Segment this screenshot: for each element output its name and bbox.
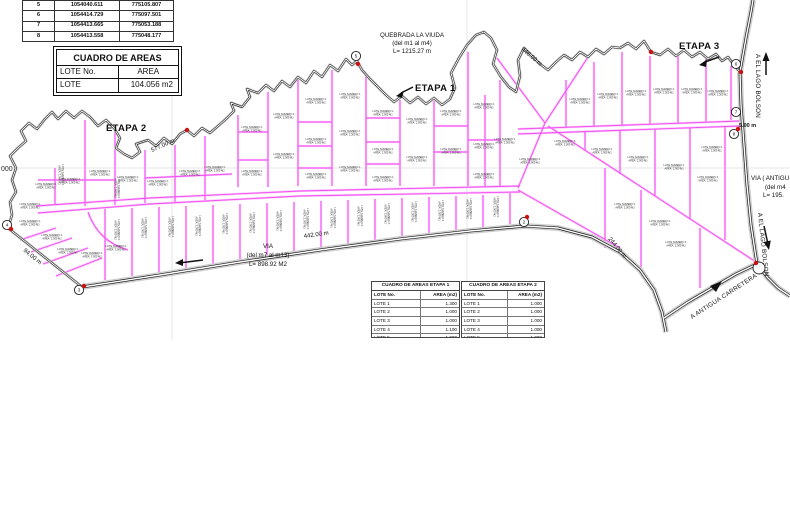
lot-label: LOTE NUMERO 1AREA: 1,000 M2 xyxy=(406,117,428,125)
etapa1-table-header: LOTE No. AREA (m2) xyxy=(372,291,459,300)
svg-text:LOTE NUMERO 1: LOTE NUMERO 1 xyxy=(614,202,636,206)
svg-text:AREA: 1,000 M2: AREA: 1,000 M2 xyxy=(306,141,326,145)
svg-text:LOTE NUMERO 1: LOTE NUMERO 1 xyxy=(663,163,685,167)
svg-text:LOTE NUMERO 1: LOTE NUMERO 1 xyxy=(414,201,418,223)
lot-label: LOTE NUMERO 1AREA: 1,000 M2 xyxy=(383,203,391,225)
svg-text:AREA: 1,000 M2: AREA: 1,000 M2 xyxy=(474,176,494,180)
etapa-table-row: LOTE 41.100 xyxy=(372,326,459,335)
lot-label: LOTE NUMERO 1AREA: 1,000 M2 xyxy=(35,182,57,190)
svg-text:LOTE NUMERO 1: LOTE NUMERO 1 xyxy=(61,164,65,186)
lot-label: LOTE NUMERO 1AREA: 1,000 M2 xyxy=(554,139,576,147)
lot-label: LOTE NUMERO 1AREA: 1,000 M2 xyxy=(591,147,613,155)
control-point-dot xyxy=(9,227,13,231)
lot-label: LOTE NUMERO 1AREA: 1,000 M2 xyxy=(465,198,473,220)
lot-label: LOTE NUMERO 1AREA: 1,000 M2 xyxy=(19,219,41,227)
lot-label: LOTE NUMERO 1AREA: 1,000 M2 xyxy=(339,129,361,137)
svg-text:LOTE NUMERO 1: LOTE NUMERO 1 xyxy=(372,175,394,179)
lot-label: LOTE NUMERO 1AREA: 1,000 M2 xyxy=(305,137,327,145)
svg-text:LOTE NUMERO 1: LOTE NUMERO 1 xyxy=(198,215,202,237)
lot-label: LOTE NUMERO 1AREA: 1,000 M2 xyxy=(302,208,310,230)
lot-label: LOTE NUMERO 1AREA: 1,000 M2 xyxy=(113,177,121,199)
lot-label: LOTE NUMERO 1AREA: 1,000 M2 xyxy=(372,109,394,117)
lot-label: LOTE NUMERO 1AREA: 1,000 M2 xyxy=(105,244,127,252)
marker-number: 5 xyxy=(355,54,358,59)
svg-text:AREA: 1,000 M2: AREA: 1,000 M2 xyxy=(555,143,575,147)
lot-label: LOTE NUMERO 1AREA: 1,000 M2 xyxy=(81,251,103,259)
svg-text:LOTE NUMERO 1: LOTE NUMERO 1 xyxy=(306,208,310,230)
survey-marker-7: 7 xyxy=(731,107,740,116)
marker-number: 8 xyxy=(733,132,736,137)
lot-label: LOTE NUMERO 1AREA: 1,000 M2 xyxy=(473,142,495,150)
svg-text:AREA: 1,000 M2: AREA: 1,000 M2 xyxy=(275,211,279,231)
lot-line xyxy=(497,58,545,123)
lot-label: LOTE NUMERO 1AREA: 1,000 M2 xyxy=(519,157,541,165)
lot-label: LOTE NUMERO 1AREA: 1,000 M2 xyxy=(221,213,229,235)
lot-label: LOTE NUMERO 1AREA: 1,000 M2 xyxy=(681,87,703,95)
lote-name-cell: LOTE 1 xyxy=(462,300,507,308)
svg-text:AREA: 1,000 M2: AREA: 1,000 M2 xyxy=(615,206,635,210)
svg-text:LOTE NUMERO 1: LOTE NUMERO 1 xyxy=(665,240,687,244)
svg-text:LOTE NUMERO 1: LOTE NUMERO 1 xyxy=(339,165,361,169)
plat-drawing-canvas: LOTE NUMERO 1AREA: 1,000 M2LOTE NUMERO 1… xyxy=(0,0,790,527)
lot-label: LOTE NUMERO 1AREA: 1,000 M2 xyxy=(437,200,445,222)
lote-name-cell: LOTE 2 xyxy=(462,308,507,316)
svg-text:AREA: 1,000 M2: AREA: 1,000 M2 xyxy=(106,248,126,252)
control-point-dot xyxy=(356,62,360,66)
svg-text:AREA: 1,000 M2: AREA: 1,000 M2 xyxy=(465,199,469,219)
svg-text:LOTE NUMERO 1: LOTE NUMERO 1 xyxy=(469,198,473,220)
svg-text:AREA: 1,000 M2: AREA: 1,000 M2 xyxy=(474,146,494,150)
etapa2-col1: LOTE No. xyxy=(462,291,507,299)
svg-text:AREA: 1,000 M2: AREA: 1,000 M2 xyxy=(441,151,461,155)
svg-text:AREA: 1,000 M2: AREA: 1,000 M2 xyxy=(340,96,360,100)
svg-text:AREA: 1,000 M2: AREA: 1,000 M2 xyxy=(140,218,144,238)
coord-cell: 775105.807 xyxy=(120,1,174,11)
svg-text:LOTE NUMERO 1: LOTE NUMERO 1 xyxy=(305,172,327,176)
survey-marker-6: 6 xyxy=(731,59,740,68)
svg-text:LOTE NUMERO 1: LOTE NUMERO 1 xyxy=(494,137,516,141)
marker-number: 4 xyxy=(6,223,9,228)
control-point-dot xyxy=(649,50,653,54)
coord-table-row: 81054413.558775048.177 xyxy=(23,31,174,41)
svg-text:LOTE NUMERO 1: LOTE NUMERO 1 xyxy=(649,219,671,223)
lot-line xyxy=(38,192,520,213)
svg-text:LOTE NUMERO 1: LOTE NUMERO 1 xyxy=(89,169,111,173)
lot-label: LOTE NUMERO 1AREA: 1,000 M2 xyxy=(147,179,169,187)
quebrada-name: QUEBRADA LA VIUDA xyxy=(380,32,445,39)
lot-label: LOTE NUMERO 1AREA: 1,000 M2 xyxy=(372,147,394,155)
svg-text:LOTE NUMERO 1: LOTE NUMERO 1 xyxy=(225,213,229,235)
svg-text:LOTE NUMERO 1: LOTE NUMERO 1 xyxy=(441,200,445,222)
control-point-dot xyxy=(525,215,529,219)
lot-label: LOTE NUMERO 1AREA: 1,000 M2 xyxy=(275,210,283,232)
svg-text:LOTE NUMERO 1: LOTE NUMERO 1 xyxy=(372,109,394,113)
lot-line xyxy=(38,192,520,213)
lot-label: LOTE NUMERO 1AREA: 1,000 M2 xyxy=(273,152,295,160)
lote-name-cell: LOTE 4 xyxy=(462,326,507,334)
area-table-title: CUADRO DE AREAS xyxy=(57,50,178,66)
lot-label: LOTE NUMERO 1AREA: 1,000 M2 xyxy=(204,165,226,173)
svg-text:LOTE NUMERO 1: LOTE NUMERO 1 xyxy=(519,157,541,161)
lot-label: LOTE NUMERO 1AREA: 1,000 M2 xyxy=(339,165,361,173)
svg-text:AREA: 1,000 M2: AREA: 1,000 M2 xyxy=(90,173,110,177)
svg-text:AREA: 1,000 M2: AREA: 1,000 M2 xyxy=(682,91,702,95)
lot-label: LOTE NUMERO 1AREA: 1,000 M2 xyxy=(697,175,719,183)
lot-line xyxy=(36,186,520,206)
lot-label: LOTE NUMERO 1AREA: 1,000 M2 xyxy=(707,89,729,97)
via-name: VIA xyxy=(263,243,274,250)
coord-cell: 7 xyxy=(23,21,55,31)
svg-text:LOTE NUMERO 1: LOTE NUMERO 1 xyxy=(279,210,283,232)
svg-text:LOTE NUMERO 1: LOTE NUMERO 1 xyxy=(305,137,327,141)
lot-label: LOTE NUMERO 1AREA: 1,000 M2 xyxy=(653,87,675,95)
svg-text:LOTE NUMERO 1: LOTE NUMERO 1 xyxy=(707,89,729,93)
dim-448: 448.00 m xyxy=(520,47,543,68)
svg-text:LOTE NUMERO 1: LOTE NUMERO 1 xyxy=(473,172,495,176)
cuadro-areas-etapa-2-table: CUADRO DE AREAS ETAPA 2 LOTE No. AREA (m… xyxy=(461,281,545,338)
etapa2-table-header: LOTE No. AREA (m2) xyxy=(462,291,544,300)
lote-area-cell: 1.000 xyxy=(507,334,544,338)
svg-text:AREA: 1,000 M2: AREA: 1,000 M2 xyxy=(407,121,427,125)
svg-text:AREA: 1,000 M2: AREA: 1,000 M2 xyxy=(82,255,102,259)
coordinate-table: 51054040.611775105.80761054414.729775097… xyxy=(22,0,174,42)
lot-label: LOTE NUMERO 1AREA: 1,000 M2 xyxy=(339,92,361,100)
svg-text:AREA: 1,000 M2: AREA: 1,000 M2 xyxy=(373,151,393,155)
via-antigua-range: (del m4 xyxy=(765,184,786,191)
cuadro-areas-etapa-1-table: CUADRO DE AREAS ETAPA 1 LOTE No. AREA (m… xyxy=(371,281,460,338)
etapa-table-row: LOTE 21.000 xyxy=(462,308,544,317)
lot-label: LOTE NUMERO 1AREA: 1,000 M2 xyxy=(167,216,175,238)
svg-text:AREA: 1,000 M2: AREA: 1,000 M2 xyxy=(221,214,225,234)
lot-label: LOTE NUMERO 1AREA: 1,000 M2 xyxy=(625,89,647,97)
svg-text:AREA: 1,000 M2: AREA: 1,000 M2 xyxy=(36,186,56,190)
svg-text:AREA: 1,000 M2: AREA: 1,000 M2 xyxy=(598,96,618,100)
via-antigua-length: L= 195. xyxy=(763,192,784,199)
svg-text:AREA: 1,000 M2: AREA: 1,000 M2 xyxy=(58,251,78,255)
svg-text:LOTE NUMERO 1: LOTE NUMERO 1 xyxy=(179,169,201,173)
svg-text:AREA: 1,000 M2: AREA: 1,000 M2 xyxy=(708,93,728,97)
lot-label: LOTE NUMERO 1AREA: 1,000 M2 xyxy=(41,233,63,241)
svg-text:AREA: 1,000 M2: AREA: 1,000 M2 xyxy=(118,179,138,183)
coord-table-row: 71054413.665775053.188 xyxy=(23,21,174,31)
lot-label: LOTE NUMERO 1AREA: 1,000 M2 xyxy=(273,112,295,120)
lote-area-cell: 1.000 xyxy=(420,308,459,316)
svg-text:AREA: 1,000 M2: AREA: 1,000 M2 xyxy=(329,208,333,228)
svg-text:LOTE NUMERO 1: LOTE NUMERO 1 xyxy=(117,219,121,241)
control-point-dot xyxy=(185,128,189,132)
svg-text:AREA: 1,000 M2: AREA: 1,000 M2 xyxy=(306,176,326,180)
svg-text:AREA: 1,000 M2: AREA: 1,000 M2 xyxy=(113,178,117,198)
svg-text:AREA: 1,000 M2: AREA: 1,000 M2 xyxy=(242,129,262,133)
etapa1-col2: AREA (m2) xyxy=(420,291,459,299)
coord-cell: 8 xyxy=(23,31,55,41)
svg-text:AREA: 1,000 M2: AREA: 1,000 M2 xyxy=(274,116,294,120)
marker-number: 6 xyxy=(735,62,738,67)
marker-number: 3 xyxy=(78,288,81,293)
lot-label: LOTE NUMERO 1AREA: 1,000 M2 xyxy=(473,172,495,180)
lote-name-cell: LOTE 3 xyxy=(462,317,507,325)
svg-text:AREA: 1,000 M2: AREA: 1,000 M2 xyxy=(383,204,387,224)
svg-text:LOTE NUMERO 1: LOTE NUMERO 1 xyxy=(204,165,226,169)
svg-text:AREA: 1,000 M2: AREA: 1,000 M2 xyxy=(205,169,225,173)
svg-text:LOTE NUMERO 1: LOTE NUMERO 1 xyxy=(273,112,295,116)
etapa1-col1: LOTE No. xyxy=(372,291,420,299)
lote-area-cell: 1.300 xyxy=(420,300,459,308)
grid-coordinate-label: 000 xyxy=(1,166,13,173)
etapa-3-label: ETAPA 3 xyxy=(679,41,719,52)
area-table-area-cell: 104.056 m2 xyxy=(118,79,179,92)
svg-text:LOTE NUMERO 1: LOTE NUMERO 1 xyxy=(241,125,263,129)
svg-text:AREA: 1,000 M2: AREA: 1,000 M2 xyxy=(592,151,612,155)
svg-text:LOTE NUMERO 1: LOTE NUMERO 1 xyxy=(35,182,57,186)
svg-text:AREA: 1,000 M2: AREA: 1,000 M2 xyxy=(180,173,200,177)
svg-text:LOTE NUMERO 1: LOTE NUMERO 1 xyxy=(171,216,175,238)
lote-name-cell: LOTE 3 xyxy=(372,317,420,325)
lote-name-cell: LOTE 5 xyxy=(372,334,420,338)
quebrada-length: L= 1215.27 m xyxy=(393,48,431,55)
svg-text:LOTE NUMERO 1: LOTE NUMERO 1 xyxy=(554,139,576,143)
svg-text:AREA: 1,000 M2: AREA: 1,000 M2 xyxy=(42,237,62,241)
svg-text:AREA: 1,000 M2: AREA: 1,000 M2 xyxy=(702,149,722,153)
area-table-col2-header: AREA xyxy=(118,66,179,79)
svg-text:LOTE NUMERO 1: LOTE NUMERO 1 xyxy=(701,145,723,149)
svg-text:LOTE NUMERO 1: LOTE NUMERO 1 xyxy=(625,89,647,93)
coord-cell: 1054414.729 xyxy=(55,11,120,21)
lot-label: LOTE NUMERO 1AREA: 1,000 M2 xyxy=(305,172,327,180)
svg-text:AREA: 1,000 M2: AREA: 1,000 M2 xyxy=(274,156,294,160)
svg-text:LOTE NUMERO 1: LOTE NUMERO 1 xyxy=(496,196,500,218)
lot-label: LOTE NUMERO 1AREA: 1,000 M2 xyxy=(248,212,256,234)
svg-text:LOTE NUMERO 1: LOTE NUMERO 1 xyxy=(681,87,703,91)
lot-label: LOTE NUMERO 1AREA: 1,000 M2 xyxy=(57,164,65,186)
lote-area-cell: 1.000 xyxy=(420,317,459,325)
coord-cell: 6 xyxy=(23,11,55,21)
svg-text:AREA: 1,000 M2: AREA: 1,000 M2 xyxy=(302,209,306,229)
lot-label: LOTE NUMERO 1AREA: 1,000 M2 xyxy=(597,92,619,100)
lot-label: LOTE NUMERO 1AREA: 1,000 M2 xyxy=(492,196,500,218)
etapa2-col2: AREA (m2) xyxy=(507,291,544,299)
control-point-dot xyxy=(82,284,86,288)
svg-text:AREA: 1,000 M2: AREA: 1,000 M2 xyxy=(373,113,393,117)
lote-name-cell: LOTE 5 xyxy=(462,334,507,338)
lote-area-cell: 1.000 xyxy=(420,334,459,338)
svg-text:LOTE NUMERO 1: LOTE NUMERO 1 xyxy=(144,217,148,239)
svg-text:AREA: 1,000 M2: AREA: 1,000 M2 xyxy=(698,179,718,183)
svg-text:LOTE NUMERO 1: LOTE NUMERO 1 xyxy=(406,117,428,121)
coord-table-row: 51054040.611775105.807 xyxy=(23,1,174,11)
quebrada-range: (del m1 al m4) xyxy=(392,40,432,47)
area-table-col1-header: LOTE No. xyxy=(57,66,118,79)
coord-cell: 1054413.665 xyxy=(55,21,120,31)
coord-cell: 1054413.558 xyxy=(55,31,120,41)
svg-text:LOTE NUMERO 1: LOTE NUMERO 1 xyxy=(339,92,361,96)
svg-text:AREA: 1,000 M2: AREA: 1,000 M2 xyxy=(167,217,171,237)
svg-text:LOTE NUMERO 1: LOTE NUMERO 1 xyxy=(339,129,361,133)
coord-cell: 775097.501 xyxy=(120,11,174,21)
dim-5: 5.00 m xyxy=(739,123,756,129)
svg-text:AREA: 1,000 M2: AREA: 1,000 M2 xyxy=(441,113,461,117)
svg-text:LOTE NUMERO 1: LOTE NUMERO 1 xyxy=(333,207,337,229)
via-length: L= 898.92 M2 xyxy=(249,261,288,268)
svg-text:LOTE NUMERO 1: LOTE NUMERO 1 xyxy=(19,219,41,223)
lot-label: LOTE NUMERO 1AREA: 1,000 M2 xyxy=(627,155,649,163)
lot-label: LOTE NUMERO 1AREA: 1,000 M2 xyxy=(241,169,263,177)
svg-text:AREA: 1,000 M2: AREA: 1,000 M2 xyxy=(437,201,441,221)
lot-label: LOTE NUMERO 1AREA: 1,000 M2 xyxy=(57,247,79,255)
svg-text:LOTE NUMERO 1: LOTE NUMERO 1 xyxy=(440,147,462,151)
lot-label: LOTE NUMERO 1AREA: 1,000 M2 xyxy=(329,207,337,229)
lot-label: LOTE NUMERO 1AREA: 1,000 M2 xyxy=(113,219,121,241)
svg-text:AREA: 1,000 M2: AREA: 1,000 M2 xyxy=(340,169,360,173)
lot-label: LOTE NUMERO 1AREA: 1,000 M2 xyxy=(569,97,591,105)
lot-label: LOTE NUMERO 1AREA: 1,000 M2 xyxy=(241,125,263,133)
lot-label: LOTE NUMERO 1AREA: 1,000 M2 xyxy=(649,219,671,227)
lot-label: LOTE NUMERO 1AREA: 1,000 M2 xyxy=(665,240,687,248)
lot-label: LOTE NUMERO 1AREA: 1,000 M2 xyxy=(614,202,636,210)
area-table-lote-cell: LOTE xyxy=(57,79,118,92)
svg-text:LOTE NUMERO 1: LOTE NUMERO 1 xyxy=(19,202,41,206)
etapa-table-row: LOTE 11.300 xyxy=(372,300,459,309)
marker-number: 2 xyxy=(523,220,526,225)
coord-cell: 775048.177 xyxy=(120,31,174,41)
etapa-2-label: ETAPA 2 xyxy=(106,123,146,134)
lot-label: LOTE NUMERO 1AREA: 1,000 M2 xyxy=(179,169,201,177)
svg-text:LOTE NUMERO 1: LOTE NUMERO 1 xyxy=(252,212,256,234)
lote-area-cell: 1.000 xyxy=(507,300,544,308)
svg-text:LOTE NUMERO 1: LOTE NUMERO 1 xyxy=(105,244,127,248)
svg-text:AREA: 1,000 M2: AREA: 1,000 M2 xyxy=(626,93,646,97)
svg-text:AREA: 1,000 M2: AREA: 1,000 M2 xyxy=(148,183,168,187)
etapa-table-row: LOTE 11.000 xyxy=(462,300,544,309)
lote-area-cell: 1.000 xyxy=(507,317,544,325)
lote-name-cell: LOTE 1 xyxy=(372,300,420,308)
svg-text:LOTE NUMERO 1: LOTE NUMERO 1 xyxy=(41,233,63,237)
coord-table-row: 61054414.729775097.501 xyxy=(23,11,174,21)
svg-text:AREA: 1,000 M2: AREA: 1,000 M2 xyxy=(113,220,117,240)
lote-area-cell: 1.000 xyxy=(507,326,544,334)
lot-label: LOTE NUMERO 1AREA: 1,000 M2 xyxy=(305,97,327,105)
coord-cell: 5 xyxy=(23,1,55,11)
svg-text:AREA: 1,000 M2: AREA: 1,000 M2 xyxy=(407,159,427,163)
via-arrow xyxy=(175,259,203,266)
svg-text:LOTE NUMERO 1: LOTE NUMERO 1 xyxy=(57,247,79,251)
svg-text:AREA: 1,000 M2: AREA: 1,000 M2 xyxy=(248,213,252,233)
svg-text:AREA: 1,000 M2: AREA: 1,000 M2 xyxy=(306,101,326,105)
svg-text:AREA: 1,000 M2: AREA: 1,000 M2 xyxy=(492,197,496,217)
lot-label: LOTE NUMERO 1AREA: 1,000 M2 xyxy=(440,147,462,155)
svg-text:AREA: 1,000 M2: AREA: 1,000 M2 xyxy=(666,244,686,248)
via-range: (del m7 al m13) xyxy=(247,252,290,259)
lote-name-cell: LOTE 2 xyxy=(372,308,420,316)
lot-line xyxy=(36,186,520,206)
lot-label: LOTE NUMERO 1AREA: 1,000 M2 xyxy=(440,109,462,117)
lot-label: LOTE NUMERO 1AREA: 1,000 M2 xyxy=(406,155,428,163)
lot-label: LOTE NUMERO 1AREA: 1,000 M2 xyxy=(19,202,41,210)
svg-text:AREA: 1,000 M2: AREA: 1,000 M2 xyxy=(628,159,648,163)
via-antigua-name: VIA ( ANTIGU xyxy=(751,175,789,182)
svg-text:AREA: 1,000 M2: AREA: 1,000 M2 xyxy=(520,161,540,165)
svg-text:LOTE NUMERO 1: LOTE NUMERO 1 xyxy=(440,109,462,113)
lot-label: LOTE NUMERO 1AREA: 1,000 M2 xyxy=(140,217,148,239)
svg-text:LOTE NUMERO 1: LOTE NUMERO 1 xyxy=(273,152,295,156)
svg-text:LOTE NUMERO 1: LOTE NUMERO 1 xyxy=(697,175,719,179)
svg-text:AREA: 1,000 M2: AREA: 1,000 M2 xyxy=(356,206,360,226)
svg-text:LOTE NUMERO 1: LOTE NUMERO 1 xyxy=(387,203,391,225)
svg-text:LOTE NUMERO 1: LOTE NUMERO 1 xyxy=(591,147,613,151)
svg-text:LOTE NUMERO 1: LOTE NUMERO 1 xyxy=(597,92,619,96)
svg-text:LOTE NUMERO 1: LOTE NUMERO 1 xyxy=(569,97,591,101)
svg-text:LOTE NUMERO 1: LOTE NUMERO 1 xyxy=(627,155,649,159)
lot-label: LOTE NUMERO 1AREA: 1,000 M2 xyxy=(473,102,495,110)
survey-marker-5: 5 xyxy=(351,51,360,60)
lot-label: LOTE NUMERO 1AREA: 1,000 M2 xyxy=(194,215,202,237)
lago-north-arrow xyxy=(763,52,770,75)
coord-cell: 1054040.611 xyxy=(55,1,120,11)
lote-area-cell: 1.100 xyxy=(420,326,459,334)
etapa-table-row: LOTE 21.000 xyxy=(372,308,459,317)
etapa-table-row: LOTE 41.000 xyxy=(462,326,544,335)
lote-area-cell: 1.000 xyxy=(507,308,544,316)
lot-label: LOTE NUMERO 1AREA: 1,000 M2 xyxy=(372,175,394,183)
svg-text:LOTE NUMERO 1: LOTE NUMERO 1 xyxy=(360,205,364,227)
svg-text:LOTE NUMERO 1: LOTE NUMERO 1 xyxy=(81,251,103,255)
svg-text:AREA: 1,000 M2: AREA: 1,000 M2 xyxy=(650,223,670,227)
etapa-table-row: LOTE 31.000 xyxy=(372,317,459,326)
svg-text:AREA: 1,000 M2: AREA: 1,000 M2 xyxy=(664,167,684,171)
svg-text:AREA: 1,000 M2: AREA: 1,000 M2 xyxy=(495,141,515,145)
svg-text:LOTE NUMERO 1: LOTE NUMERO 1 xyxy=(305,97,327,101)
svg-text:AREA: 1,000 M2: AREA: 1,000 M2 xyxy=(340,133,360,137)
svg-text:LOTE NUMERO 1: LOTE NUMERO 1 xyxy=(147,179,169,183)
etapa-table-row: LOTE 51.000 xyxy=(462,334,544,338)
svg-text:LOTE NUMERO 1: LOTE NUMERO 1 xyxy=(117,177,121,199)
svg-text:AREA: 1,000 M2: AREA: 1,000 M2 xyxy=(194,216,198,236)
svg-text:AREA: 1,000 M2: AREA: 1,000 M2 xyxy=(474,106,494,110)
etapa-1-label: ETAPA 1 xyxy=(415,83,456,94)
svg-text:LOTE NUMERO 1: LOTE NUMERO 1 xyxy=(406,155,428,159)
etapa-table-row: LOTE 51.000 xyxy=(372,334,459,338)
control-point-dot xyxy=(736,127,740,131)
svg-text:AREA: 1,000 M2: AREA: 1,000 M2 xyxy=(242,173,262,177)
svg-text:AREA: 1,000 M2: AREA: 1,000 M2 xyxy=(20,223,40,227)
svg-text:LOTE NUMERO 1: LOTE NUMERO 1 xyxy=(473,102,495,106)
coord-cell: 775053.188 xyxy=(120,21,174,31)
lote-name-cell: LOTE 4 xyxy=(372,326,420,334)
lot-label: LOTE NUMERO 1AREA: 1,000 M2 xyxy=(356,205,364,227)
control-point-dot xyxy=(754,261,758,265)
svg-text:AREA: 1,000 M2: AREA: 1,000 M2 xyxy=(57,165,61,185)
svg-text:AREA: 1,000 M2: AREA: 1,000 M2 xyxy=(654,91,674,95)
road-core xyxy=(740,0,753,72)
svg-text:LOTE NUMERO 1: LOTE NUMERO 1 xyxy=(241,169,263,173)
svg-text:AREA: 1,000 M2: AREA: 1,000 M2 xyxy=(20,206,40,210)
lot-label: LOTE NUMERO 1AREA: 1,000 M2 xyxy=(89,169,111,177)
lot-label: LOTE NUMERO 1AREA: 1,000 M2 xyxy=(494,137,516,145)
etapa1-table-title: CUADRO DE AREAS ETAPA 1 xyxy=(372,282,459,291)
svg-text:AREA: 1,000 M2: AREA: 1,000 M2 xyxy=(373,179,393,183)
etapa2-table-title: CUADRO DE AREAS ETAPA 2 xyxy=(462,282,544,291)
svg-text:AREA: 1,000 M2: AREA: 1,000 M2 xyxy=(410,202,414,222)
svg-text:LOTE NUMERO 1: LOTE NUMERO 1 xyxy=(372,147,394,151)
lot-label: LOTE NUMERO 1AREA: 1,000 M2 xyxy=(701,145,723,153)
etapa-table-row: LOTE 31.000 xyxy=(462,317,544,326)
svg-text:LOTE NUMERO 1: LOTE NUMERO 1 xyxy=(653,87,675,91)
cuadro-de-areas-table: CUADRO DE AREAS LOTE No. AREA LOTE 104.0… xyxy=(53,46,182,96)
control-point-dot xyxy=(739,70,743,74)
road-label-lago-north: A EL LAGO BOLSON xyxy=(754,54,761,118)
marker-number: 7 xyxy=(735,110,738,115)
svg-text:LOTE NUMERO 1: LOTE NUMERO 1 xyxy=(473,142,495,146)
